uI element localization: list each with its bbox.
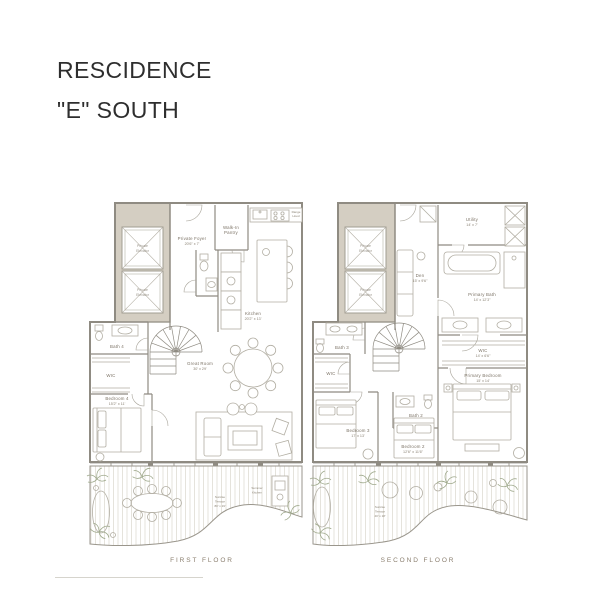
primary-wic: WIC 14' x 6'6"	[442, 341, 525, 365]
terrace-label: Sunrise	[215, 495, 226, 499]
primary-bath-door	[462, 335, 478, 351]
bedroom-3: Bedroom 3 17' x 13'	[316, 400, 373, 459]
primary-bedroom-label: Primary Bedroom	[464, 373, 501, 378]
terrace-dims: 40' x 18'	[375, 514, 386, 518]
summer-kitchen-label: Summer	[251, 486, 262, 490]
pantry-label: Pantry	[224, 230, 238, 235]
entry-door	[186, 205, 202, 221]
den: Den 15' x 9'6"	[397, 250, 428, 316]
den-sofa	[397, 250, 413, 316]
bedroom4-dims: 15'2" x 11'	[109, 402, 126, 406]
utility-label: Utility	[466, 217, 479, 222]
elevator-label: Elevator	[359, 293, 373, 297]
terrace-label: Terrace	[215, 500, 225, 504]
wic-label: WIC	[106, 373, 115, 378]
private-elevator-2: Private Elevator	[122, 271, 163, 313]
great-room-label: Great Room	[187, 361, 213, 366]
vanity	[486, 318, 522, 332]
elevator-label: Private	[137, 288, 148, 292]
den-dims: 15' x 9'6"	[413, 279, 429, 283]
second-terrace: Sunrise Terrace 40' x 18'	[310, 466, 527, 546]
bath4-label: Bath 4	[110, 344, 124, 349]
bedroom4-label: Bedroom 4	[105, 396, 129, 401]
bath-hall-door	[438, 300, 454, 316]
bench	[465, 444, 499, 451]
vanity	[442, 318, 478, 332]
kitchen-label: Kitchen	[245, 311, 261, 316]
private-elevator-1: Private Elevator	[122, 227, 163, 269]
elevator-label: Private	[360, 244, 371, 248]
bath2-label: Bath 2	[409, 413, 423, 418]
summer-kitchen-grill	[272, 476, 288, 506]
bedroom-4: Bedroom 4 15'2" x 11'	[93, 396, 141, 461]
kitchen-dims: 20'2" x 13'	[245, 317, 262, 321]
primary-bath: Primary Bath 14' x 12'3"	[442, 252, 525, 332]
bath-3: Bath 3	[316, 323, 362, 353]
entry-door	[400, 205, 416, 221]
powder-room	[200, 254, 217, 291]
primary-bedroom-dims: 15' x 14'	[476, 379, 490, 383]
first-floor-title: FIRST FLOOR	[143, 557, 261, 564]
private-elevator-3: Private Elevator	[345, 227, 386, 269]
bedroom3-label: Bedroom 3	[346, 428, 370, 433]
bath-2: Bath 2	[396, 395, 432, 418]
wic2-door	[338, 362, 350, 374]
elevator-label: Private	[360, 288, 371, 292]
bedroom3-dims: 17' x 13'	[351, 434, 365, 438]
range-hood-label: Hood	[292, 214, 300, 218]
utility-dims: 14' x 7'	[466, 223, 478, 227]
utility: Utility 14' x 7'	[466, 206, 525, 246]
private-foyer-dims: 20'6" x 7'	[185, 242, 200, 246]
fine-print-line	[55, 577, 203, 578]
spiral-stair	[373, 323, 425, 371]
bath4-door	[136, 338, 148, 350]
great-room-dims: 30' x 29'	[193, 367, 207, 371]
elevator-label: Elevator	[136, 249, 150, 253]
primary-wic-dims: 14' x 6'6"	[476, 354, 492, 358]
wic-door	[132, 394, 144, 406]
second-floor-title: SECOND FLOOR	[356, 557, 480, 564]
terrace-label: Sunrise	[375, 505, 386, 509]
floorplans-drawing: Private Elevator Private Elevator P	[0, 0, 600, 600]
shower	[504, 252, 525, 288]
bedroom2-label: Bedroom 2	[401, 444, 425, 449]
first-terrace: Sunrise Terrace 80' x 19' Summer Kitchen	[87, 463, 302, 545]
first-floor-plan: Private Elevator Private Elevator P	[87, 203, 302, 546]
wic-first: WIC	[92, 358, 130, 392]
vanity	[396, 396, 414, 407]
great-room: Great Room 30' x 29'	[187, 338, 292, 460]
primary-bath-dims: 14' x 12'3"	[474, 298, 492, 302]
private-foyer-label: Private Foyer	[178, 236, 207, 241]
chair	[514, 448, 525, 459]
wic-label: WIC	[326, 371, 335, 376]
lounge-chair	[276, 440, 292, 456]
elevator-label: Elevator	[136, 293, 150, 297]
powder-door	[184, 280, 196, 292]
kitchen-island	[257, 240, 287, 302]
floorplan-sheet: RESCIDENCE "E" SOUTH	[0, 0, 600, 600]
den-label: Den	[416, 273, 425, 278]
summer-kitchen-label: Kitchen	[252, 491, 262, 495]
elevator-label: Private	[137, 244, 148, 248]
bedroom-2: Bedroom 2 12'6" x 11'6"	[394, 418, 434, 458]
dining-table	[234, 349, 272, 387]
terrace-label: Terrace	[375, 510, 385, 514]
primary-bedroom: Primary Bedroom 15' x 14'	[444, 373, 525, 459]
bath3-label: Bath 3	[335, 345, 349, 350]
bath-4: Bath 4	[95, 325, 138, 349]
chair	[363, 449, 373, 459]
bedroom2-dims: 12'6" x 11'6"	[403, 450, 424, 454]
second-floor-plan: Private Elevator Private Elevator	[310, 203, 527, 546]
outdoor-dining-table	[131, 494, 173, 513]
lounge-chair	[272, 418, 289, 435]
private-elevator-4: Private Elevator	[345, 271, 386, 313]
elevator-label: Elevator	[359, 249, 373, 253]
terrace-dims: 80' x 19'	[215, 504, 226, 508]
primary-wic-label: WIC	[478, 348, 487, 353]
wic-second: WIC	[315, 358, 348, 388]
bedroom4-door	[152, 410, 168, 426]
primary-bath-label: Primary Bath	[468, 292, 496, 297]
